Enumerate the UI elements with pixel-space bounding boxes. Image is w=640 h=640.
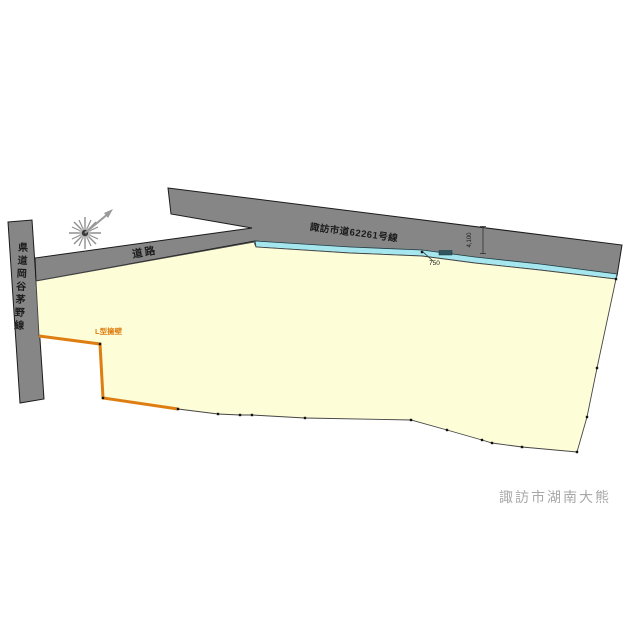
north-arrow-icon [69, 209, 113, 249]
gutter-inlet-marker [439, 251, 452, 256]
site-plan: 諏訪市道62261号線 道路 県道岡谷茅野線 L型擁壁 4,100 750 諏訪… [0, 0, 640, 640]
parcel-shape [36, 242, 616, 452]
road-width-dimension-label: 4,100 [467, 222, 473, 258]
site-plan-drawing [0, 0, 640, 640]
gutter-width-dimension-label: 750 [429, 260, 440, 267]
retaining-wall-label: L型擁壁 [95, 326, 122, 337]
location-label: 諏訪市湖南大熊 [499, 487, 611, 507]
